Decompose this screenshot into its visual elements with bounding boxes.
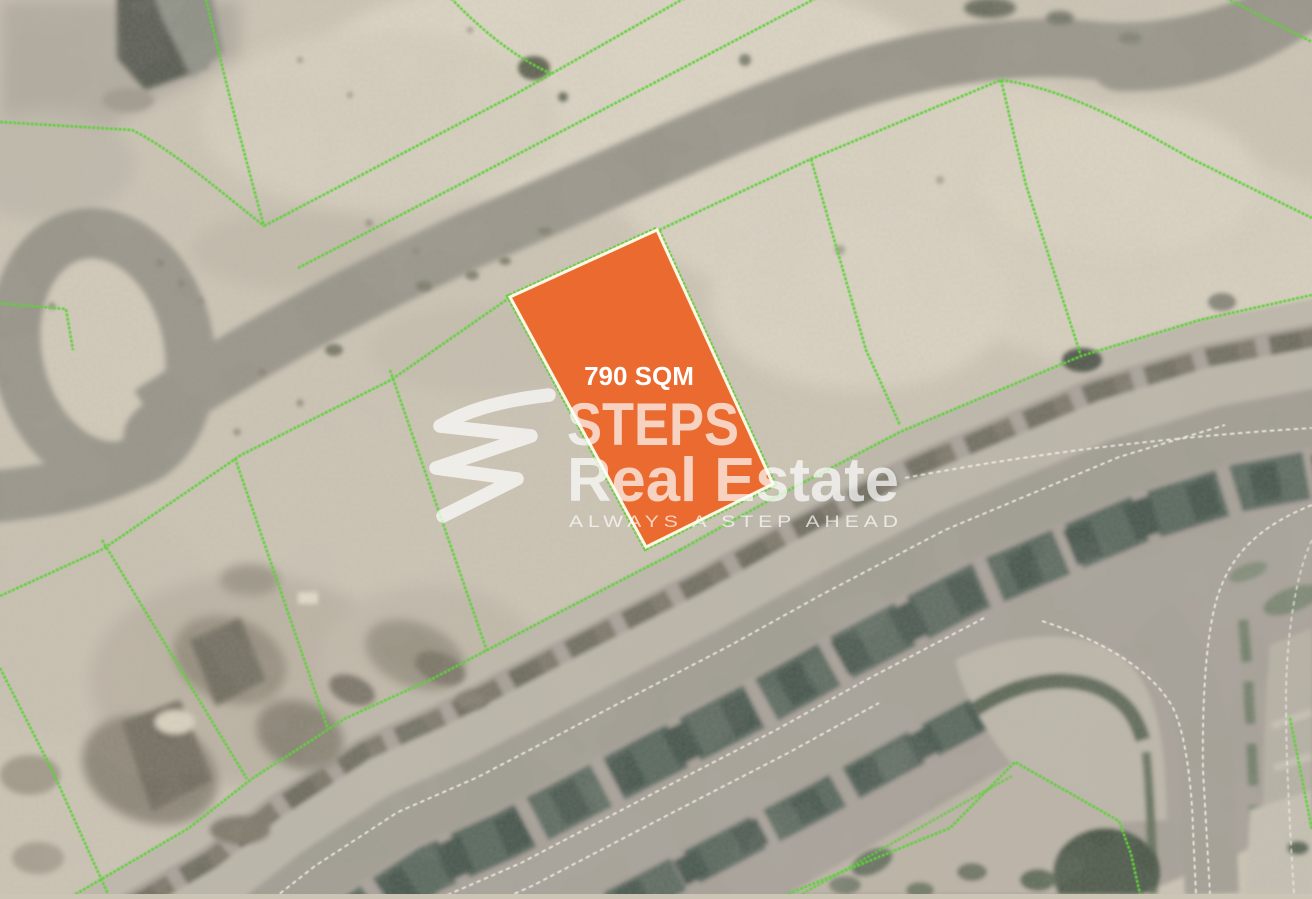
svg-text:790 SQM: 790 SQM <box>584 361 694 391</box>
svg-text:ALWAYS A STEP AHEAD: ALWAYS A STEP AHEAD <box>569 512 903 531</box>
svg-text:Real Estate: Real Estate <box>567 446 899 515</box>
